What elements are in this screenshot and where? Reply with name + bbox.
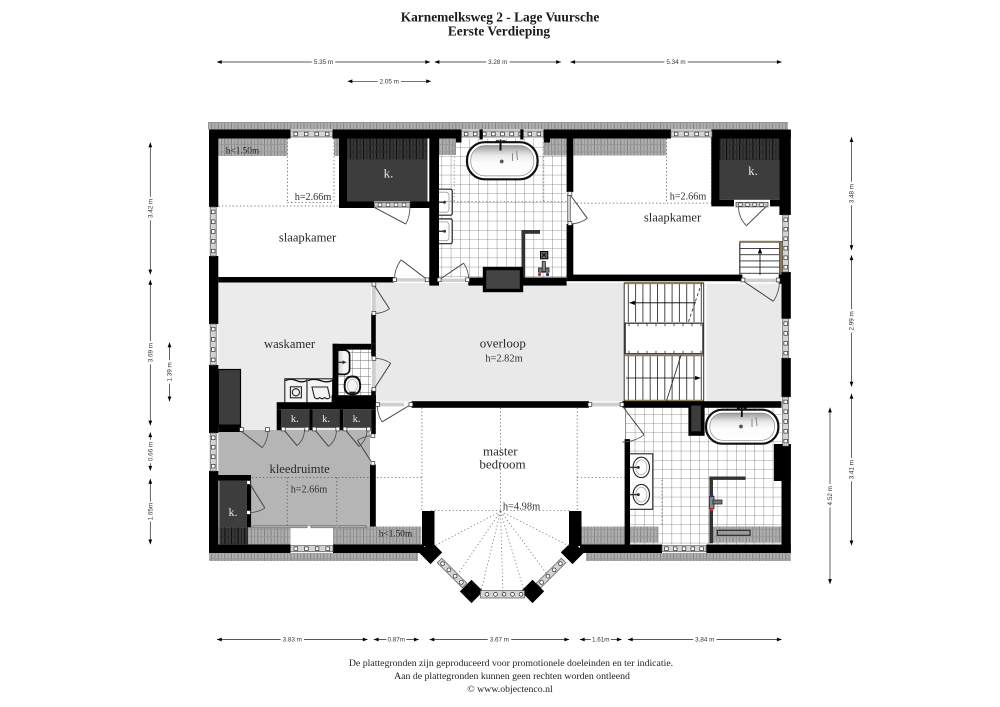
svg-text:bedroom: bedroom (479, 457, 525, 472)
svg-text:Aan de plattegronden kunnen ge: Aan de plattegronden kunnen geen rechten… (394, 671, 630, 682)
svg-text:k.: k. (322, 414, 330, 425)
svg-text:3.83 m: 3.83 m (283, 637, 302, 644)
svg-text:1.61m: 1.61m (592, 637, 610, 644)
svg-text:h=2.66m: h=2.66m (295, 192, 332, 203)
svg-text:3.69 m: 3.69 m (148, 343, 155, 362)
svg-text:waskamer: waskamer (264, 337, 316, 351)
svg-text:Eerste Verdieping: Eerste Verdieping (448, 24, 551, 39)
svg-text:0.87m: 0.87m (388, 637, 406, 644)
svg-text:h<1.50m: h<1.50m (226, 147, 260, 157)
svg-text:k.: k. (384, 166, 394, 181)
svg-text:© www.objectenco.nl: © www.objectenco.nl (467, 684, 553, 695)
svg-text:5.35 m: 5.35 m (314, 59, 333, 66)
svg-text:overloop: overloop (480, 336, 526, 351)
svg-text:3.42 m: 3.42 m (148, 199, 155, 218)
svg-text:kleedruimte: kleedruimte (270, 462, 331, 476)
svg-text:De plattegronden zijn geproduc: De plattegronden zijn geproduceerd voor … (349, 658, 673, 669)
svg-text:3.84 m: 3.84 m (695, 637, 714, 644)
svg-text:3.28 m: 3.28 m (488, 59, 507, 66)
svg-text:0.66 m: 0.66 m (148, 442, 155, 461)
svg-text:h=2.66m: h=2.66m (670, 192, 707, 203)
svg-text:1.39 m: 1.39 m (167, 362, 174, 381)
svg-text:2.05 m: 2.05 m (380, 79, 399, 86)
svg-text:k.: k. (748, 163, 758, 178)
svg-text:h=2.82m: h=2.82m (485, 354, 522, 365)
svg-text:Karnemelksweg 2 - Lage Vuursch: Karnemelksweg 2 - Lage Vuursche (401, 10, 600, 25)
svg-text:3.48 m: 3.48 m (849, 184, 856, 203)
svg-text:4.52 m: 4.52 m (827, 486, 834, 505)
svg-text:h=4.98m: h=4.98m (503, 502, 540, 513)
svg-text:3.41 m: 3.41 m (849, 460, 856, 479)
svg-text:k.: k. (353, 414, 361, 425)
svg-text:1.65m: 1.65m (148, 503, 155, 521)
svg-text:k.: k. (291, 414, 299, 425)
svg-text:slaapkamer: slaapkamer (644, 211, 702, 225)
svg-text:k.: k. (229, 505, 238, 519)
svg-text:5.34 m: 5.34 m (666, 59, 685, 66)
svg-text:3.67 m: 3.67 m (490, 637, 509, 644)
svg-text:slaapkamer: slaapkamer (279, 231, 337, 245)
svg-text:h<1.50m: h<1.50m (379, 530, 413, 540)
svg-text:h=2.66m: h=2.66m (291, 485, 328, 496)
svg-text:2.99 m: 2.99 m (849, 311, 856, 330)
